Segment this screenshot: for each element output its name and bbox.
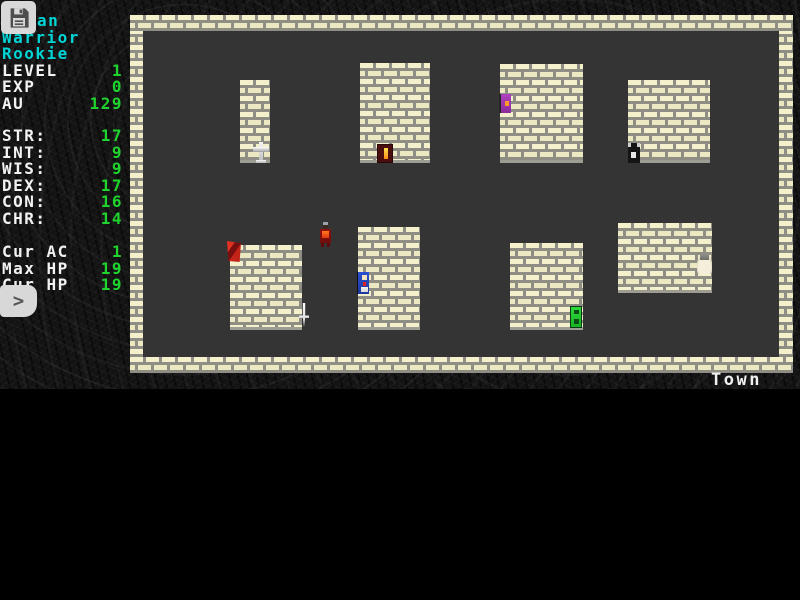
building: [500, 64, 583, 163]
building: [360, 63, 430, 163]
map-wall-left: [130, 29, 143, 373]
save-button[interactable]: [1, 1, 36, 34]
gold-value: 129: [90, 96, 123, 113]
sprite-cross[interactable]: [253, 142, 269, 163]
chr-value: 14: [101, 211, 123, 228]
chevron-right-icon: >: [13, 290, 24, 312]
attributes-block: STR: 17 INT: 9 WIS: 9 DEX: 17 CON: 16: [2, 128, 123, 228]
sprite-red-banner[interactable]: [227, 241, 241, 262]
stat-row-chr: CHR: 14: [2, 211, 123, 228]
sprite-black-door[interactable]: [628, 143, 640, 163]
chr-label: CHR:: [2, 211, 47, 228]
building: [230, 245, 302, 330]
gold-row: AU 129: [2, 96, 123, 113]
map-wall-bottom: [130, 357, 793, 373]
sprite-white-hand[interactable]: [697, 255, 712, 274]
sprite-red-warrior[interactable]: [318, 222, 333, 247]
location-label: Town: [711, 371, 762, 389]
sprite-green-door[interactable]: [570, 306, 582, 328]
town-map: [130, 15, 793, 373]
sprite-blue-knight[interactable]: [357, 272, 369, 294]
building: [628, 80, 710, 163]
sprite-torch-door[interactable]: [377, 144, 393, 163]
command-prompt-button[interactable]: >: [0, 285, 37, 317]
floppy-disk-icon: [7, 6, 31, 30]
sprite-purple-figure[interactable]: [499, 94, 511, 113]
character-panel: an Warrior Rookie LEVEL 1 EXP 0 AU 129: [0, 0, 130, 389]
game-screen: an Warrior Rookie LEVEL 1 EXP 0 AU 129: [0, 0, 800, 600]
map-wall-right: [779, 29, 793, 373]
cur-hp-value: 19: [101, 277, 123, 294]
map-wall-top: [130, 15, 793, 31]
gold-label: AU: [2, 96, 24, 113]
scene-background: an Warrior Rookie LEVEL 1 EXP 0 AU 129: [0, 0, 800, 389]
letterbox-bottom: [0, 389, 800, 600]
